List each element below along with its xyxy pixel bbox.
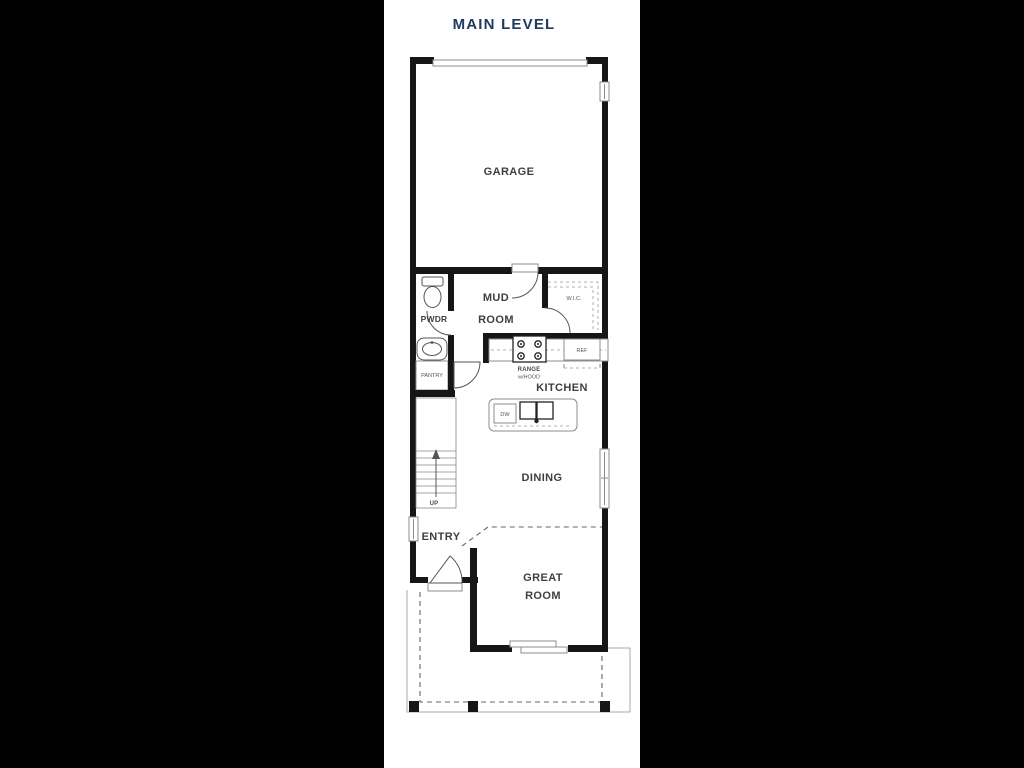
- dishwasher-label: DW: [500, 412, 510, 418]
- pantry: PANTRY: [410, 356, 480, 397]
- sink-icon: [417, 338, 447, 360]
- dining-label: DINING: [522, 472, 563, 484]
- ceiling-break-line: [462, 527, 602, 546]
- mud-room-label-line2: ROOM: [478, 314, 514, 326]
- garage-entry-door-swing: [512, 272, 538, 298]
- dining-window: [600, 449, 609, 508]
- floor-plan: MAIN LEVEL GARAGE: [384, 0, 640, 768]
- up-arrow-icon: [432, 449, 440, 497]
- front-door: [428, 556, 462, 591]
- kitchen-island: DW: [489, 399, 577, 431]
- screenshot-root: { "title": "MAIN LEVEL", "rooms": { "gar…: [0, 0, 1024, 768]
- pantry-label: PANTRY: [421, 373, 443, 379]
- wic-closet: W.I.C.: [542, 274, 598, 333]
- refrigerator-label: REF: [577, 348, 589, 354]
- garage-label: GARAGE: [484, 166, 535, 178]
- pantry-door-swing: [454, 362, 480, 388]
- mud-room-label-line1: MUD: [483, 292, 509, 304]
- wic-door-swing: [545, 308, 570, 333]
- porch-posts: [409, 701, 610, 712]
- great-room: GREAT ROOM: [462, 527, 608, 653]
- entry-label: ENTRY: [422, 531, 461, 543]
- dining-area: DINING: [522, 449, 609, 508]
- range-label-line1: RANGE: [518, 367, 541, 373]
- patio-door: [510, 641, 567, 653]
- entry-area: ENTRY: [409, 517, 478, 652]
- great-room-label-line2: ROOM: [525, 590, 561, 602]
- dishwasher: DW: [494, 404, 516, 423]
- page-title: MAIN LEVEL: [453, 16, 556, 33]
- kitchen-label: KITCHEN: [536, 382, 588, 394]
- garage-entry-door: [512, 264, 538, 272]
- powder-label: PWDR: [421, 314, 448, 324]
- toilet-icon: [422, 277, 443, 308]
- wic-shelf-line: [548, 282, 598, 330]
- stairs-up-label: UP: [430, 501, 439, 507]
- range-label-line2: w/HOOD: [517, 375, 540, 381]
- great-room-label-line1: GREAT: [523, 572, 563, 584]
- stairs: UP: [416, 398, 456, 508]
- kitchen: REF RANGE w/HOOD KITCHEN DW: [483, 333, 608, 431]
- range-icon: [513, 336, 546, 362]
- wic-label: W.I.C.: [567, 296, 582, 302]
- entry-window: [409, 517, 418, 541]
- floor-plan-page: MAIN LEVEL GARAGE: [384, 0, 640, 768]
- garage-room: GARAGE: [433, 60, 609, 178]
- refrigerator: REF: [564, 339, 600, 368]
- wic-shelf-line-inner: [548, 287, 593, 330]
- garage-window: [600, 82, 609, 101]
- garage-door: [433, 60, 587, 66]
